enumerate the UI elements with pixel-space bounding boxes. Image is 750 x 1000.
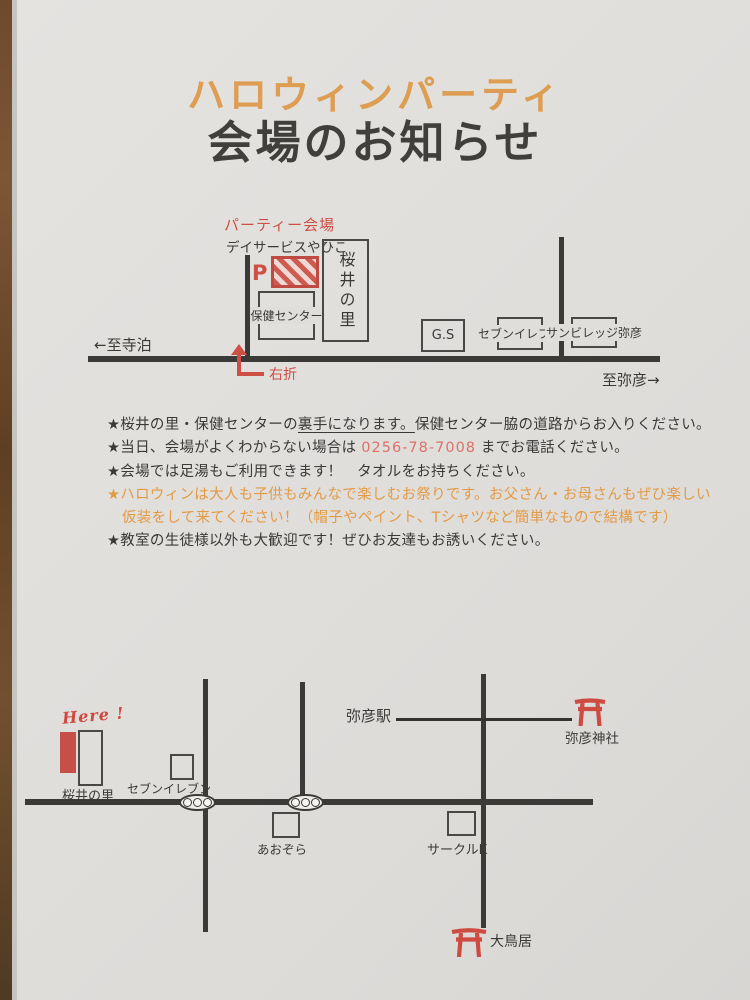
page-subtitle: 会場のお知らせ — [0, 106, 750, 171]
map2-vertical-road-2 — [300, 682, 305, 803]
seven-eleven-box: セブンイレブン — [497, 317, 543, 350]
sakurai-building-box — [78, 730, 103, 786]
signal-lamp — [183, 798, 192, 807]
seven-eleven-area-box — [170, 754, 194, 780]
otorii-label: 大鳥居 — [490, 931, 532, 951]
sakurai-no-sato-box: 桜井の里 — [322, 239, 369, 342]
here-marker-icon — [60, 732, 76, 773]
traffic-signal-icon — [287, 794, 324, 811]
shrine-label: 弥彦神社 — [565, 727, 619, 747]
notes-section: ★桜井の里・保健センターの裏手になります。保健センター脇の道路からお入りください… — [107, 414, 687, 554]
station-road-line — [396, 718, 572, 721]
parking-label: P — [252, 261, 267, 285]
sakurai-no-sato-label: 桜井の里 — [334, 251, 358, 331]
phone-number: 0256-78-7008 — [361, 440, 476, 456]
note-line-6: ★教室の生徒様以外も大歓迎です！ぜひお友達もお誘いください。 — [107, 530, 687, 553]
to-yahiko-label: 至弥彦→ — [602, 369, 660, 390]
health-center-box: 保健センター — [258, 291, 315, 340]
circle-k-box — [447, 811, 476, 836]
turn-right-label: 右折 — [269, 364, 297, 384]
here-label: Here ! — [61, 703, 125, 727]
torii-icon — [573, 697, 607, 726]
party-venue-label: パーティー会場 — [224, 214, 335, 235]
party-venue-building-icon — [271, 256, 319, 288]
signal-lamp — [193, 798, 202, 807]
note-line-4: ★ハロウィンは大人も子供もみんなで楽しむお祭りです。お父さん・お母さんもぜひ楽し… — [107, 484, 687, 507]
note2-pre: ★当日、会場がよくわからない場合は — [107, 440, 361, 456]
note2-post: までお電話ください。 — [476, 440, 629, 456]
note1-pre: ★桜井の里・保健センターの — [107, 417, 298, 433]
note-line-1: ★桜井の里・保健センターの裏手になります。保健センター脇の道路からお入りください… — [107, 414, 687, 437]
note-line-5: 仮装をして来てください！（帽子やペイント、Tシャツなど簡単なもので結構です） — [107, 507, 687, 530]
signal-lamp — [203, 798, 212, 807]
note1-underlined: 裏手になります。 — [298, 417, 415, 433]
circle-k-label: サークルK — [427, 839, 487, 858]
sunvillage-label: サンビレッジ弥彦 — [545, 324, 643, 341]
sunvillage-box: サンビレッジ弥彦 — [571, 317, 617, 348]
aozora-label: あおぞら — [257, 839, 307, 858]
to-teradomari-label: ←至寺泊 — [94, 334, 152, 355]
note-line-3: ★会場では足湯もご利用できます！ タオルをお持ちください。 — [107, 461, 687, 484]
signal-lamp — [291, 798, 300, 807]
torii-icon — [450, 926, 488, 957]
arrow-shaft-horizontal — [237, 372, 264, 376]
health-center-label: 保健センター — [250, 307, 324, 324]
map1-main-road — [88, 356, 660, 362]
aozora-box — [272, 812, 300, 838]
gas-station-box: G.S — [421, 319, 465, 352]
note-line-2: ★当日、会場がよくわからない場合は 0256-78-7008 までお電話ください… — [107, 437, 687, 460]
gas-station-label: G.S — [432, 328, 454, 343]
traffic-signal-icon — [179, 794, 216, 811]
station-label: 弥彦駅 — [346, 705, 391, 726]
note1-post: 保健センター脇の道路からお入りください。 — [415, 417, 711, 433]
signal-lamp — [301, 798, 310, 807]
signal-lamp — [311, 798, 320, 807]
